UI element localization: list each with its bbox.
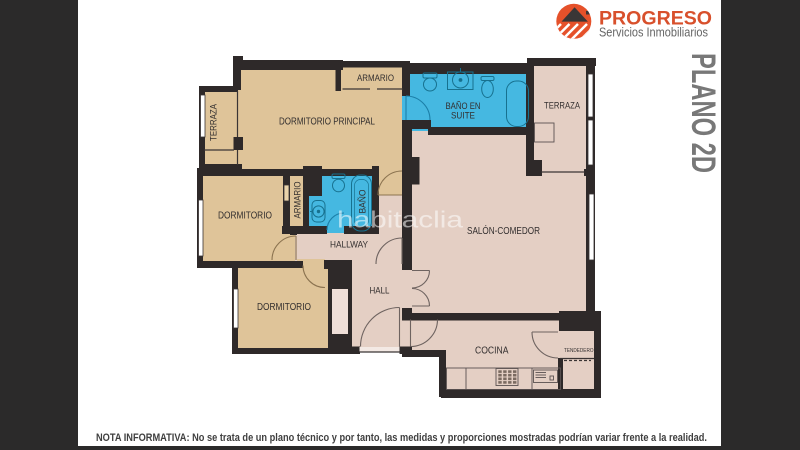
svg-text:DORMITORIO PRINCIPAL: DORMITORIO PRINCIPAL — [279, 117, 375, 128]
svg-text:TERRAZA: TERRAZA — [209, 104, 219, 141]
svg-text:TERRAZA: TERRAZA — [544, 101, 580, 111]
svg-text:DORMITORIO: DORMITORIO — [218, 211, 272, 222]
svg-text:DORMITORIO: DORMITORIO — [257, 302, 311, 313]
svg-text:TENDEDERO: TENDEDERO — [564, 348, 594, 354]
svg-text:SUITE: SUITE — [451, 111, 475, 121]
svg-text:BAÑO EN: BAÑO EN — [446, 101, 481, 111]
svg-text:ARMARIO: ARMARIO — [357, 73, 394, 83]
svg-text:COCINA: COCINA — [475, 345, 509, 357]
svg-text:habitaclia: habitaclia — [337, 207, 464, 233]
svg-text:NOTA INFORMATIVA: No se trata: NOTA INFORMATIVA: No se trata de un plan… — [96, 432, 707, 444]
svg-text:Servicios Inmobiliarios: Servicios Inmobiliarios — [599, 26, 708, 40]
svg-text:HALLWAY: HALLWAY — [330, 240, 368, 250]
svg-text:HALL: HALL — [370, 286, 390, 296]
svg-text:ARMARIO: ARMARIO — [293, 182, 303, 219]
svg-text:PLANO 2D: PLANO 2D — [684, 53, 722, 173]
svg-text:SALÓN-COMEDOR: SALÓN-COMEDOR — [467, 224, 540, 237]
